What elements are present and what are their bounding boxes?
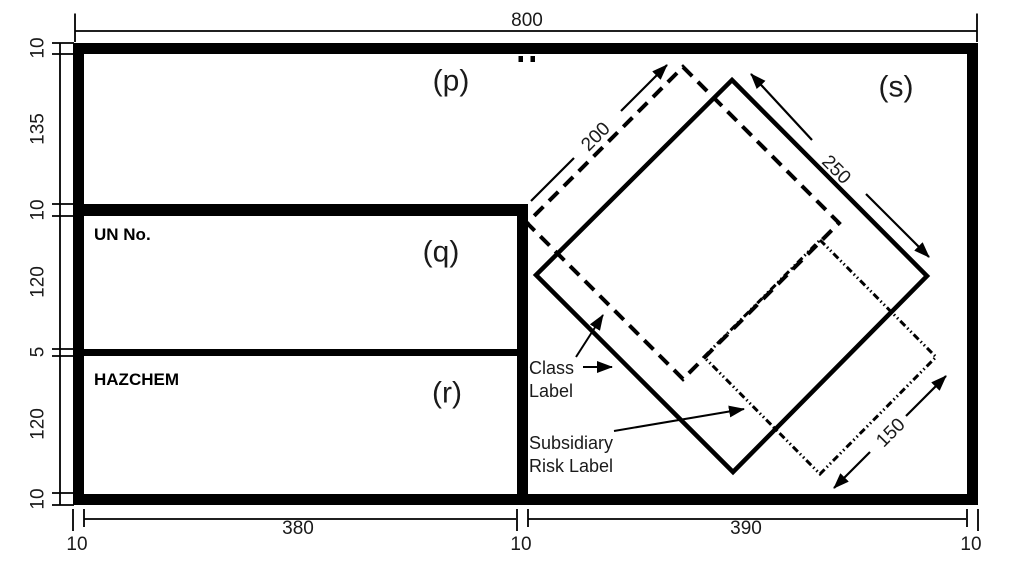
subsidiary-risk-annotation-line1: Subsidiary — [529, 433, 613, 453]
panel-layout-drawing: (p) (q) (r) (s) UN No. HAZCHEM 200 250 1… — [0, 0, 1033, 569]
divider-horizontal-upper — [79, 204, 528, 216]
dim-left-value-divider-lower: 5 — [28, 347, 49, 358]
class-label-annotation-line2: Label — [529, 381, 573, 401]
dim-left-value-p-height: 135 — [28, 113, 49, 145]
dim-bottom-value-border-left: 10 — [66, 534, 87, 555]
diagram-canvas: (p) (q) (r) (s) UN No. HAZCHEM 200 250 1… — [0, 0, 1033, 569]
section-label-s: (s) — [879, 71, 914, 104]
dim-bottom-value-right-width: 390 — [730, 518, 762, 539]
class-label-annotation-line1: Class — [529, 358, 574, 378]
dim-left-value-q-height: 120 — [28, 266, 49, 298]
divider-vertical-center — [517, 204, 528, 505]
dim-left-value-divider-upper: 10 — [28, 199, 49, 220]
divider-horizontal-lower — [79, 349, 517, 356]
dim-left-value-r-height: 120 — [28, 408, 49, 440]
section-label-p: (p) — [433, 65, 470, 98]
subsidiary-risk-annotation-line2: Risk Label — [529, 456, 613, 476]
un-no-caption: UN No. — [94, 225, 151, 244]
divider-top-stub-right — [531, 56, 536, 62]
dim-bottom-value-border-right: 10 — [960, 534, 981, 555]
dim-top-value: 800 — [511, 10, 543, 31]
dim-left-value-border-top: 10 — [28, 37, 49, 58]
section-label-q: (q) — [423, 236, 460, 269]
section-label-r: (r) — [432, 377, 462, 410]
divider-top-stub-left — [519, 56, 524, 62]
dim-left-value-border-bottom: 10 — [28, 488, 49, 509]
dim-bottom-value-divider: 10 — [510, 534, 531, 555]
hazchem-caption: HAZCHEM — [94, 370, 179, 389]
dim-bottom-value-left-width: 380 — [282, 518, 314, 539]
